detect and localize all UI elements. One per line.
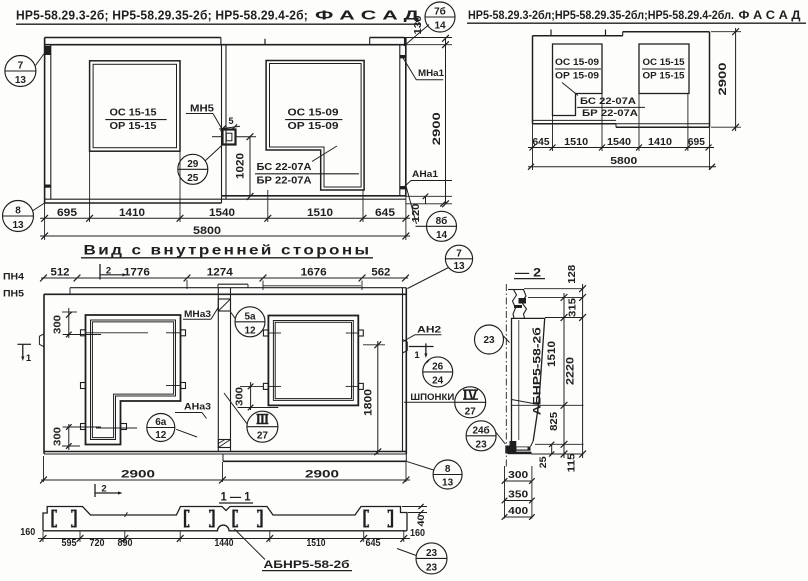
svg-text:2900: 2900 bbox=[431, 112, 443, 145]
svg-text:— 2: — 2 bbox=[515, 267, 541, 279]
svg-text:1510: 1510 bbox=[307, 207, 333, 219]
svg-text:Ф А С А Д: Ф А С А Д bbox=[315, 8, 419, 22]
svg-text:ОР 15-15: ОР 15-15 bbox=[643, 71, 685, 81]
svg-text:562: 562 bbox=[371, 267, 390, 279]
svg-text:ОР 15-15: ОР 15-15 bbox=[110, 121, 157, 132]
svg-text:БР 22-07А: БР 22-07А bbox=[582, 108, 639, 118]
svg-text:ОС 15-09: ОС 15-09 bbox=[555, 57, 599, 67]
svg-text:1440: 1440 bbox=[215, 538, 234, 549]
svg-text:7б: 7б bbox=[434, 6, 446, 18]
svg-text:120: 120 bbox=[411, 203, 422, 223]
svg-text:26: 26 bbox=[432, 361, 444, 372]
svg-text:695: 695 bbox=[57, 207, 77, 219]
svg-text:ПН4: ПН4 bbox=[3, 272, 24, 282]
svg-text:5800: 5800 bbox=[193, 225, 221, 237]
svg-text:1510: 1510 bbox=[564, 137, 589, 148]
svg-text:13: 13 bbox=[453, 261, 465, 272]
svg-text:115: 115 bbox=[567, 453, 578, 473]
svg-text:5: 5 bbox=[228, 116, 233, 126]
svg-text:160: 160 bbox=[20, 527, 35, 538]
svg-text:1410: 1410 bbox=[648, 137, 673, 148]
svg-text:2900: 2900 bbox=[121, 469, 155, 481]
svg-text:5800: 5800 bbox=[610, 155, 637, 167]
svg-text:5а: 5а bbox=[244, 311, 256, 322]
svg-text:890: 890 bbox=[118, 538, 133, 549]
svg-text:АБНР5-58-2б: АБНР5-58-2б bbox=[264, 559, 350, 571]
svg-text:23: 23 bbox=[483, 335, 495, 346]
svg-text:1410: 1410 bbox=[119, 207, 145, 219]
svg-text:1: 1 bbox=[26, 353, 32, 364]
svg-text:1776: 1776 bbox=[124, 267, 150, 279]
svg-text:БС 22-07А: БС 22-07А bbox=[257, 162, 313, 173]
svg-text:27: 27 bbox=[257, 431, 269, 442]
svg-text:АБНР5-58-2б: АБНР5-58-2б bbox=[531, 327, 543, 415]
svg-text:24: 24 bbox=[432, 375, 444, 386]
svg-text:645: 645 bbox=[533, 137, 551, 148]
svg-text:12: 12 bbox=[155, 430, 167, 441]
svg-text:23: 23 bbox=[426, 548, 438, 559]
svg-text:2: 2 bbox=[101, 484, 106, 495]
svg-text:6а: 6а bbox=[155, 417, 167, 428]
svg-text:2: 2 bbox=[106, 266, 111, 277]
svg-text:350: 350 bbox=[508, 489, 529, 500]
svg-text:128: 128 bbox=[567, 264, 578, 284]
svg-text:1540: 1540 bbox=[209, 207, 235, 219]
svg-text:23: 23 bbox=[426, 562, 438, 573]
svg-text:ОС 15-15: ОС 15-15 bbox=[643, 57, 685, 67]
svg-text:40: 40 bbox=[415, 515, 426, 527]
svg-text:14: 14 bbox=[436, 230, 448, 241]
svg-text:1800: 1800 bbox=[362, 389, 374, 416]
svg-text:ПН5: ПН5 bbox=[3, 289, 24, 299]
svg-text:13: 13 bbox=[15, 75, 27, 86]
svg-text:25: 25 bbox=[187, 173, 199, 184]
svg-text:1540: 1540 bbox=[607, 137, 632, 148]
svg-text:720: 720 bbox=[90, 538, 105, 549]
svg-text:300: 300 bbox=[508, 470, 529, 481]
svg-text:8: 8 bbox=[445, 464, 451, 475]
svg-text:24б: 24б bbox=[472, 424, 489, 436]
svg-text:АНа1: АНа1 bbox=[412, 169, 439, 180]
svg-text:1676: 1676 bbox=[301, 267, 327, 279]
svg-text:8: 8 bbox=[15, 206, 21, 217]
svg-text:НР5-58.29.3-2б; НР5-58.29.35-: НР5-58.29.3-2б; НР5-58.29.35-2б; НР5-58.… bbox=[16, 8, 308, 22]
svg-text:13: 13 bbox=[442, 478, 454, 489]
svg-text:1510: 1510 bbox=[546, 341, 558, 367]
svg-text:7: 7 bbox=[18, 61, 24, 72]
svg-text:1274: 1274 bbox=[207, 267, 233, 279]
svg-text:1 — 1: 1 — 1 bbox=[221, 491, 252, 503]
svg-text:ОР 15-09: ОР 15-09 bbox=[288, 121, 339, 132]
svg-text:23: 23 bbox=[476, 439, 488, 450]
svg-text:300: 300 bbox=[235, 386, 246, 406]
svg-text:МНа1: МНа1 bbox=[418, 68, 445, 79]
svg-text:14: 14 bbox=[434, 21, 446, 32]
svg-text:1020: 1020 bbox=[235, 153, 247, 179]
svg-text:8б: 8б bbox=[436, 215, 448, 227]
svg-text:2900: 2900 bbox=[717, 63, 729, 96]
svg-text:130: 130 bbox=[413, 15, 424, 35]
svg-text:400: 400 bbox=[508, 506, 529, 517]
svg-text:595: 595 bbox=[62, 538, 77, 549]
svg-text:825: 825 bbox=[549, 411, 560, 431]
svg-text:7: 7 bbox=[456, 248, 462, 259]
svg-text:ОС 15-15: ОС 15-15 bbox=[110, 108, 157, 119]
svg-text:645: 645 bbox=[366, 538, 381, 549]
svg-text:12: 12 bbox=[244, 325, 256, 336]
svg-text:300: 300 bbox=[53, 314, 64, 334]
svg-text:ШПОНКИ: ШПОНКИ bbox=[410, 392, 454, 402]
svg-text:160: 160 bbox=[410, 528, 425, 539]
svg-text:695: 695 bbox=[688, 137, 706, 148]
svg-text:МНа3: МНа3 bbox=[184, 309, 211, 320]
svg-text:Вид с внутренней стороны: Вид с внутренней стороны bbox=[84, 243, 372, 259]
svg-text:Ф А С А Д: Ф А С А Д bbox=[739, 9, 802, 22]
svg-text:БР 22-07А: БР 22-07А bbox=[257, 176, 313, 187]
svg-text:13: 13 bbox=[12, 220, 24, 231]
svg-text:1510: 1510 bbox=[307, 538, 326, 549]
svg-text:2220: 2220 bbox=[564, 357, 576, 385]
svg-text:БС 22-07А: БС 22-07А bbox=[580, 96, 637, 106]
svg-text:300: 300 bbox=[53, 426, 64, 446]
svg-text:ОР 15-09: ОР 15-09 bbox=[555, 71, 599, 81]
svg-text:645: 645 bbox=[375, 207, 395, 219]
svg-text:МН5: МН5 bbox=[190, 103, 214, 114]
svg-text:НР5-58.29.3-2бл;НР5-58.29.35-2: НР5-58.29.3-2бл;НР5-58.29.35-2бл;НР5-58.… bbox=[468, 9, 734, 22]
svg-text:1: 1 bbox=[414, 350, 420, 361]
svg-text:АНа3: АНа3 bbox=[184, 402, 211, 413]
svg-text:25: 25 bbox=[537, 456, 548, 468]
svg-text:2900: 2900 bbox=[305, 469, 339, 481]
svg-text:ОС 15-09: ОС 15-09 bbox=[288, 108, 339, 119]
svg-text:27: 27 bbox=[465, 406, 477, 417]
svg-text:315: 315 bbox=[568, 297, 579, 317]
svg-text:512: 512 bbox=[51, 267, 70, 279]
svg-text:АН2: АН2 bbox=[417, 325, 441, 336]
svg-text:29: 29 bbox=[187, 159, 199, 170]
